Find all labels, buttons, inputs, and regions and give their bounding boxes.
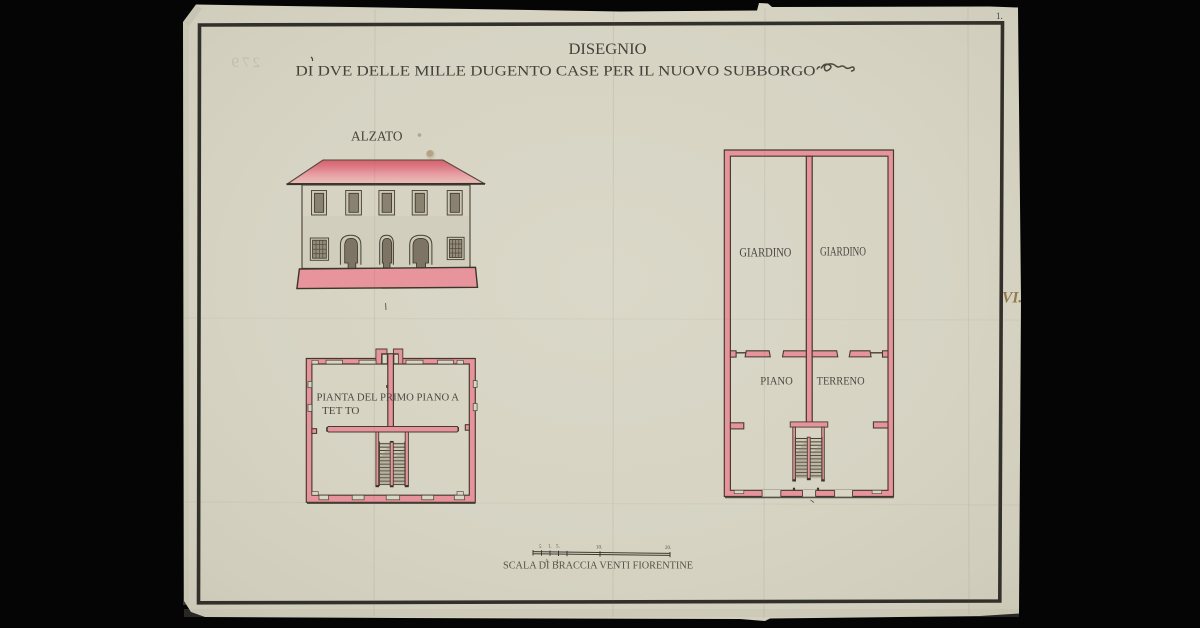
svg-text:20.: 20. [665,546,671,551]
svg-text:TERRENO: TERRENO [817,373,865,387]
svg-text:TET TO: TET TO [322,406,360,417]
svg-text:1.: 1. [996,11,1003,21]
svg-text:DISEGNIO: DISEGNIO [569,41,647,58]
svg-text:ALZATO: ALZATO [351,129,403,144]
svg-text:GIARDINO: GIARDINO [739,245,791,260]
svg-text:PIANTA DEL PRIMO PIANO A: PIANTA DEL PRIMO PIANO A [317,393,460,404]
svg-text:VI.: VI. [1002,290,1022,307]
svg-text:GIARDINO: GIARDINO [820,244,866,259]
svg-text:PIANO: PIANO [760,374,793,388]
svg-text:1.: 1. [548,545,552,550]
svg-text:DI DVE DELLE MILLE DUGENTO CAS: DI DVE DELLE MILLE DUGENTO CASE PER IL N… [296,64,816,80]
svg-text:5.: 5. [556,545,560,550]
svg-text:SCALA DI BRACCIA VENTI FIORENT: SCALA DI BRACCIA VENTI FIORENTINE [503,559,693,571]
svg-text:10.: 10. [596,545,602,550]
svg-text:279: 279 [229,55,261,71]
